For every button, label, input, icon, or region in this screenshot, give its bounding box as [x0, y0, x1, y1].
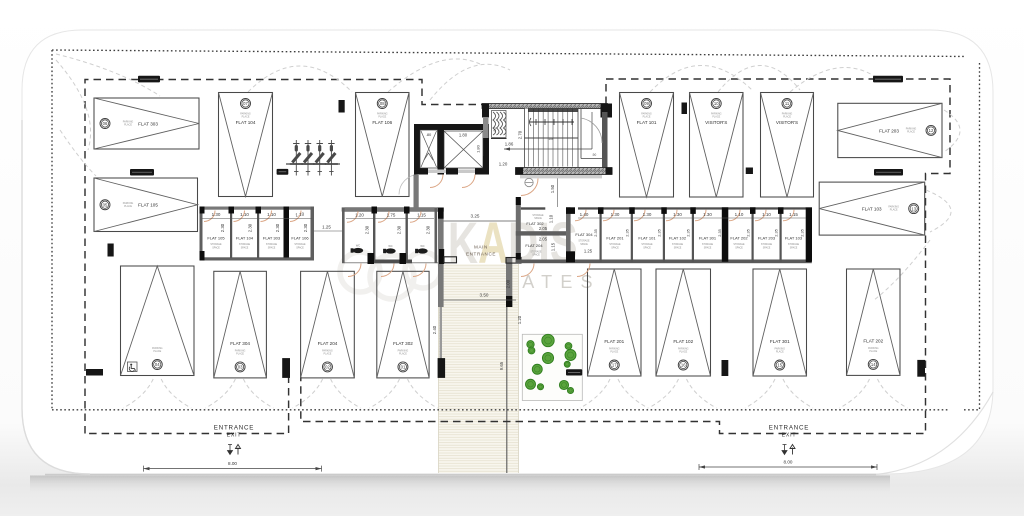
svg-text:STORAGE: STORAGE: [609, 243, 621, 246]
svg-text:1.15: 1.15: [417, 212, 426, 217]
svg-text:STORAGE: STORAGE: [532, 214, 544, 217]
svg-text:STORAGE: STORAGE: [733, 243, 745, 246]
svg-text:04: 04: [155, 362, 160, 367]
svg-text:SPACE: SPACE: [763, 246, 771, 249]
svg-text:FLAT 105: FLAT 105: [207, 236, 225, 241]
svg-text:STORAGE: STORAGE: [761, 243, 773, 246]
svg-text:3.25: 3.25: [471, 214, 480, 219]
svg-text:STORAGE: STORAGE: [702, 243, 714, 246]
svg-text:2.35: 2.35: [686, 229, 691, 237]
svg-text:2.35: 2.35: [746, 229, 751, 237]
svg-text:8.00: 8.00: [228, 461, 237, 466]
svg-text:FLAT 204: FLAT 204: [318, 341, 338, 346]
svg-text:2.35: 2.35: [593, 229, 598, 237]
svg-text:02: 02: [325, 365, 330, 370]
svg-text:SPACE: SPACE: [611, 246, 619, 249]
svg-text:PLACE: PLACE: [783, 116, 791, 119]
svg-text:1.50: 1.50: [550, 184, 555, 193]
svg-text:12: 12: [929, 128, 934, 133]
svg-text:11: 11: [785, 101, 790, 106]
svg-text:SPACE: SPACE: [580, 243, 588, 246]
svg-text:1.30: 1.30: [611, 212, 620, 217]
svg-text:FLAT 101: FLAT 101: [638, 236, 656, 241]
svg-text:PLACE: PLACE: [399, 352, 407, 355]
svg-text:MAIN: MAIN: [474, 245, 488, 250]
svg-text:SPACE: SPACE: [212, 246, 220, 249]
svg-text:.90: .90: [493, 128, 497, 133]
svg-text:1.30: 1.30: [703, 212, 712, 217]
svg-text:1.15: 1.15: [789, 212, 798, 217]
svg-text:2M: 2M: [549, 137, 554, 141]
svg-text:FLAT 104: FLAT 104: [236, 236, 254, 241]
svg-text:PLACE: PLACE: [869, 350, 877, 353]
svg-text:13: 13: [911, 206, 916, 211]
svg-text:PLACE: PLACE: [643, 116, 651, 119]
svg-text:2.05: 2.05: [539, 237, 548, 242]
svg-text:2.30: 2.30: [220, 223, 225, 232]
svg-text:PLACE: PLACE: [124, 205, 132, 208]
svg-text:PLACE: PLACE: [776, 351, 784, 354]
svg-text:FLAT 202: FLAT 202: [863, 338, 883, 343]
svg-text:FLAT 105: FLAT 105: [138, 203, 158, 208]
svg-text:.90: .90: [592, 153, 597, 157]
svg-text:2.70: 2.70: [518, 130, 523, 139]
svg-text:STORAGE: STORAGE: [641, 243, 653, 246]
svg-text:2.05: 2.05: [539, 226, 548, 231]
svg-text:SPACE: SPACE: [268, 246, 276, 249]
svg-text:SPACE: SPACE: [704, 246, 712, 249]
svg-text:STORAGE: STORAGE: [294, 243, 306, 246]
svg-text:PLACE: PLACE: [907, 130, 915, 133]
svg-text:2.30: 2.30: [397, 225, 402, 234]
svg-text:2.35: 2.35: [774, 229, 779, 237]
svg-text:WC: WC: [420, 244, 424, 248]
svg-text:ENTRANCE: ENTRANCE: [214, 425, 254, 432]
svg-text:FLAT 103: FLAT 103: [862, 206, 882, 211]
svg-text:1.30: 1.30: [673, 212, 682, 217]
svg-text:1.40: 1.40: [580, 212, 589, 217]
svg-text:1.80: 1.80: [476, 144, 481, 153]
svg-text:1.10: 1.10: [735, 212, 744, 217]
svg-text:FLAT 303: FLAT 303: [263, 236, 281, 241]
svg-text:WC: WC: [356, 244, 360, 248]
svg-text:STORAGE: STORAGE: [788, 243, 800, 246]
svg-text:.80: .80: [426, 132, 432, 137]
svg-text:1.86: 1.86: [505, 142, 514, 147]
svg-text:FLAT 106: FLAT 106: [372, 120, 392, 125]
svg-text:STORAGE: STORAGE: [210, 243, 222, 246]
svg-text:2.00: 2.00: [506, 279, 511, 288]
svg-text:2.30: 2.30: [275, 223, 280, 232]
svg-text:1.20: 1.20: [355, 212, 364, 217]
svg-text:14: 14: [871, 362, 876, 367]
svg-text:ENTRANCE: ENTRANCE: [769, 425, 809, 432]
svg-text:17: 17: [612, 363, 617, 368]
svg-text:1.10: 1.10: [762, 212, 771, 217]
svg-text:STORAGE: STORAGE: [578, 240, 590, 243]
svg-text:FLAT 201: FLAT 201: [604, 339, 624, 344]
svg-text:05: 05: [103, 202, 108, 207]
svg-text:PLACE: PLACE: [124, 124, 132, 127]
svg-text:FLAT 301: FLAT 301: [770, 339, 790, 344]
svg-text:2.40: 2.40: [432, 325, 437, 334]
svg-text:SPACE: SPACE: [534, 217, 542, 220]
svg-text:FLAT 301: FLAT 301: [699, 236, 717, 241]
svg-text:WC: WC: [388, 244, 392, 248]
svg-text:10: 10: [714, 101, 719, 106]
svg-text:1.30: 1.30: [212, 212, 221, 217]
svg-text:PLACE: PLACE: [236, 352, 244, 355]
svg-text:FLAT 304: FLAT 304: [230, 341, 250, 346]
svg-text:2.35: 2.35: [717, 229, 722, 237]
svg-text:07: 07: [243, 101, 248, 106]
svg-text:06: 06: [103, 121, 108, 126]
svg-text:2.30: 2.30: [303, 223, 308, 232]
svg-text:2.35: 2.35: [657, 229, 662, 237]
svg-text:EXIT: EXIT: [227, 432, 242, 438]
svg-text:1.10: 1.10: [240, 212, 249, 217]
svg-text:PLACE: PLACE: [242, 116, 250, 119]
svg-text:1.25: 1.25: [584, 249, 593, 254]
svg-text:PLACE: PLACE: [890, 209, 898, 212]
svg-text:FLAT 203: FLAT 203: [879, 128, 899, 133]
svg-text:SPACE: SPACE: [241, 246, 249, 249]
svg-text:1.30: 1.30: [643, 212, 652, 217]
svg-text:15: 15: [777, 363, 782, 368]
svg-text:SPACE: SPACE: [790, 246, 798, 249]
svg-text:PLACE: PLACE: [153, 350, 161, 353]
svg-text:FLAT 204: FLAT 204: [525, 243, 543, 248]
svg-text:PLACE: PLACE: [712, 116, 720, 119]
svg-text:FLAT 101: FLAT 101: [637, 120, 657, 125]
svg-text:1.15: 1.15: [551, 242, 556, 251]
svg-text:FLAT 106: FLAT 106: [291, 236, 309, 241]
svg-text:8.00: 8.00: [784, 460, 793, 465]
svg-text:VISITOR'S: VISITOR'S: [776, 120, 798, 125]
svg-text:1.25: 1.25: [322, 225, 331, 230]
svg-text:FLAT 102: FLAT 102: [669, 236, 687, 241]
svg-text:1.10: 1.10: [267, 212, 276, 217]
svg-text:1.20: 1.20: [517, 315, 522, 324]
svg-text:ENTRANCE: ENTRANCE: [466, 252, 496, 257]
svg-text:2.35: 2.35: [800, 229, 805, 237]
svg-text:01: 01: [401, 365, 406, 370]
svg-text:16: 16: [681, 363, 686, 368]
svg-text:PLACE: PLACE: [679, 351, 687, 354]
svg-text:1.80: 1.80: [459, 133, 468, 138]
svg-text:3.50: 3.50: [480, 293, 489, 298]
svg-text:FLAT 303: FLAT 303: [138, 121, 158, 126]
svg-text:SPACE: SPACE: [296, 246, 304, 249]
svg-text:09: 09: [644, 101, 649, 106]
svg-text:VISITOR'S: VISITOR'S: [705, 120, 727, 125]
svg-text:FLAT 302: FLAT 302: [393, 341, 413, 346]
svg-text:PLACE: PLACE: [378, 116, 386, 119]
svg-text:FLAT 104: FLAT 104: [236, 120, 256, 125]
svg-text:03: 03: [238, 365, 243, 370]
svg-text:SPACE: SPACE: [532, 254, 540, 257]
svg-text:1.10: 1.10: [549, 214, 554, 223]
svg-text:SPACE: SPACE: [643, 246, 651, 249]
svg-text:STORAGE: STORAGE: [530, 251, 542, 254]
svg-text:STORAGE: STORAGE: [239, 243, 251, 246]
svg-text:SPACE: SPACE: [674, 246, 682, 249]
svg-text:FLAT 201: FLAT 201: [606, 236, 624, 241]
svg-text:2.30: 2.30: [365, 225, 370, 234]
svg-text:EXIT: EXIT: [782, 432, 797, 438]
svg-text:2.30: 2.30: [248, 223, 253, 232]
svg-text:2.35: 2.35: [625, 229, 630, 237]
svg-text:PLACE: PLACE: [324, 352, 332, 355]
svg-text:PLACE: PLACE: [610, 351, 618, 354]
svg-text:2.30: 2.30: [426, 225, 431, 234]
svg-text:1.75: 1.75: [387, 212, 396, 217]
svg-text:08: 08: [380, 101, 385, 106]
svg-text:9.65: 9.65: [499, 361, 504, 370]
svg-text:FLAT 102: FLAT 102: [673, 339, 693, 344]
svg-text:FLAT 304: FLAT 304: [575, 232, 593, 237]
svg-text:SPACE: SPACE: [735, 246, 743, 249]
svg-text:STORAGE: STORAGE: [266, 243, 278, 246]
svg-text:1.20: 1.20: [499, 162, 508, 167]
svg-text:STORAGE: STORAGE: [672, 243, 684, 246]
